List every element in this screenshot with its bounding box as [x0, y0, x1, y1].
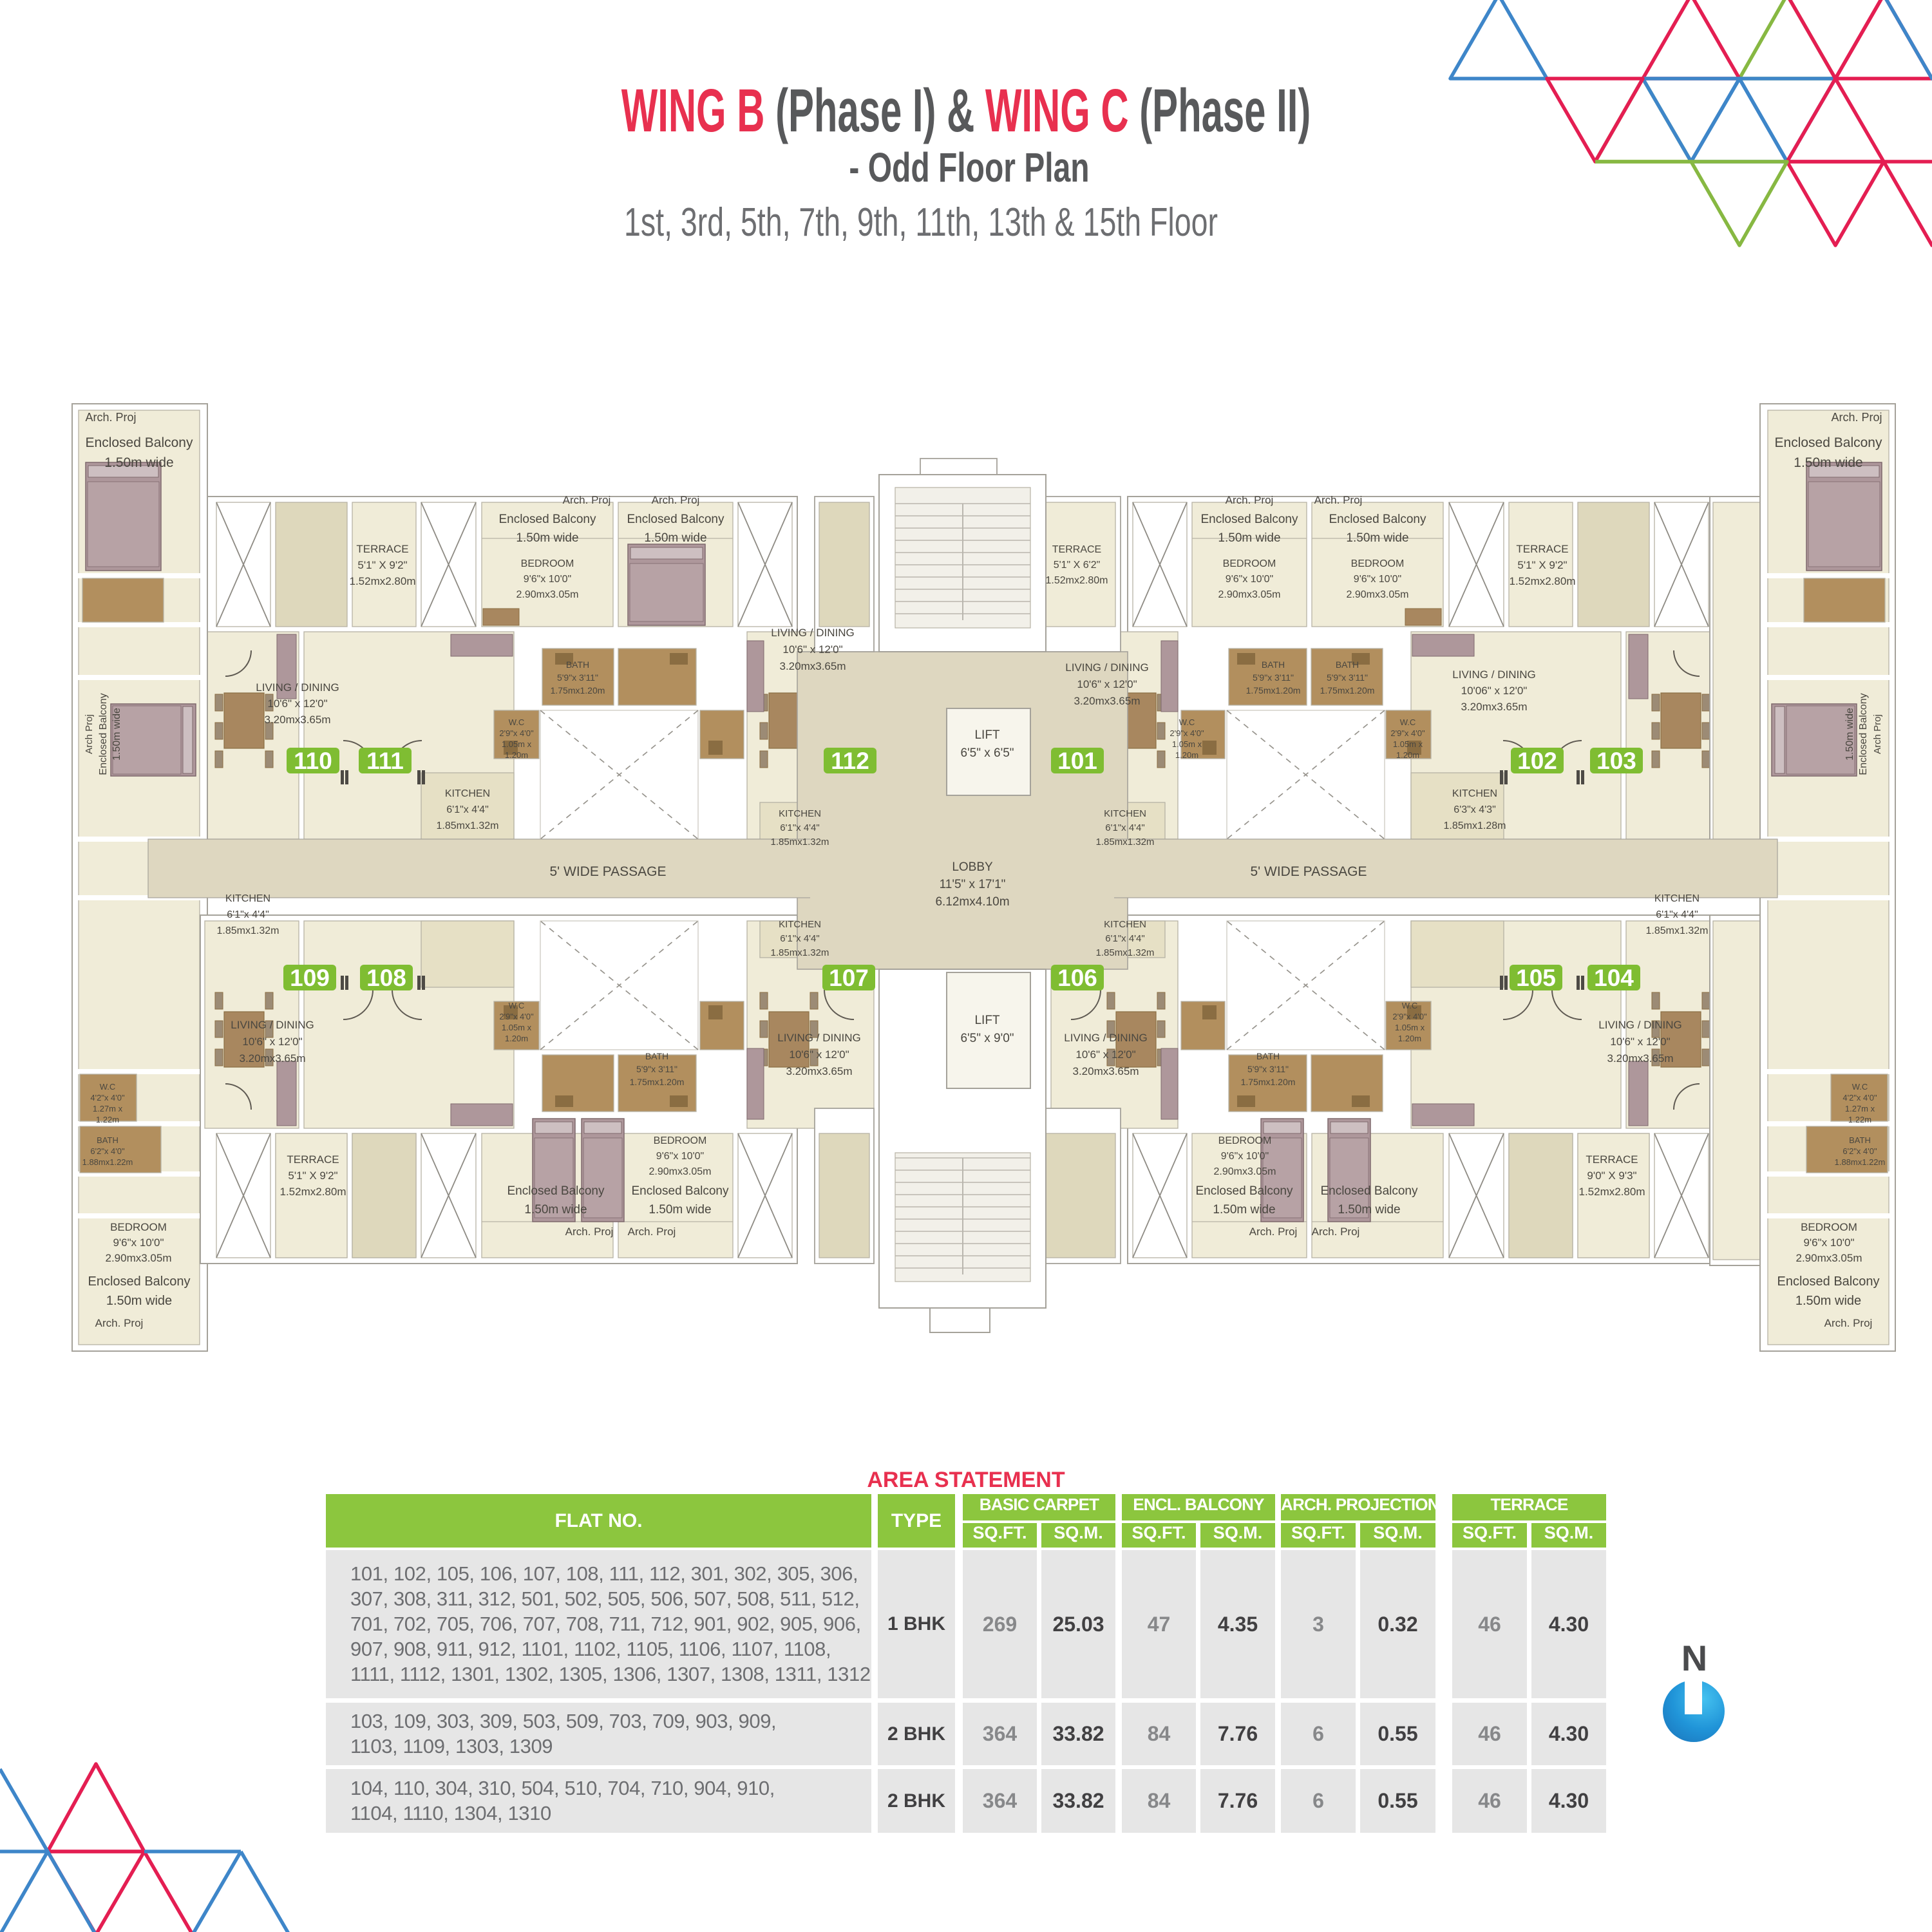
svg-text:10'6" x 12'0": 10'6" x 12'0"	[782, 643, 842, 656]
svg-text:2'9"x 4'0": 2'9"x 4'0"	[1170, 728, 1204, 738]
svg-text:Enclosed Balcony: Enclosed Balcony	[1329, 513, 1426, 526]
svg-text:9'6"x 10'0": 9'6"x 10'0"	[113, 1236, 164, 1249]
svg-text:108: 108	[366, 965, 406, 991]
svg-text:5'9"x 3'11": 5'9"x 3'11"	[557, 672, 598, 683]
svg-text:3.20mx3.65m: 3.20mx3.65m	[265, 714, 331, 726]
svg-text:Arch. Proj: Arch. Proj	[1831, 411, 1882, 424]
svg-text:5'9"x 3'11": 5'9"x 3'11"	[636, 1064, 677, 1074]
svg-text:1.75mx1.20m: 1.75mx1.20m	[630, 1077, 685, 1087]
svg-text:2.90mx3.05m: 2.90mx3.05m	[1347, 589, 1409, 600]
svg-text:1.85mx1.28m: 1.85mx1.28m	[1444, 820, 1506, 831]
svg-text:1.75mx1.20m: 1.75mx1.20m	[1320, 685, 1375, 696]
svg-text:2.90mx3.05m: 2.90mx3.05m	[1796, 1252, 1862, 1264]
svg-text:2'9"x 4'0": 2'9"x 4'0"	[1392, 1012, 1427, 1021]
svg-text:10'06" x 12'0": 10'06" x 12'0"	[1461, 685, 1528, 697]
svg-text:3.20mx3.65m: 3.20mx3.65m	[1073, 1065, 1139, 1077]
svg-text:3.20mx3.65m: 3.20mx3.65m	[780, 660, 846, 672]
svg-text:Arch Proj: Arch Proj	[84, 714, 95, 754]
svg-text:6'3"x 4'3": 6'3"x 4'3"	[1454, 804, 1496, 815]
svg-text:9'6"x 10'0": 9'6"x 10'0"	[1221, 1151, 1269, 1162]
svg-text:Arch. Proj: Arch. Proj	[1314, 494, 1363, 506]
svg-text:TERRACE: TERRACE	[1586, 1153, 1638, 1166]
svg-text:1.50m wide: 1.50m wide	[1794, 455, 1862, 470]
svg-text:10'6" x 12'0": 10'6" x 12'0"	[1075, 1048, 1135, 1061]
svg-text:2.90mx3.05m: 2.90mx3.05m	[1218, 589, 1281, 600]
svg-text:1.52mx2.80m: 1.52mx2.80m	[1579, 1186, 1645, 1198]
svg-text:Arch. Proj: Arch. Proj	[565, 1226, 614, 1238]
svg-text:104: 104	[1594, 965, 1634, 991]
svg-text:6'1"x 4'4": 6'1"x 4'4"	[1656, 909, 1698, 920]
svg-text:Arch. Proj: Arch. Proj	[1312, 1226, 1360, 1238]
svg-text:107: 107	[829, 965, 869, 991]
svg-text:1.85mx1.32m: 1.85mx1.32m	[1096, 837, 1155, 848]
svg-text:LOBBY: LOBBY	[952, 860, 993, 874]
svg-text:1.50m wide: 1.50m wide	[516, 531, 578, 545]
svg-text:106: 106	[1057, 965, 1097, 991]
svg-text:5' WIDE PASSAGE: 5' WIDE PASSAGE	[1250, 864, 1367, 879]
svg-text:1.20m: 1.20m	[505, 1034, 528, 1043]
svg-text:1.22m: 1.22m	[96, 1115, 119, 1124]
svg-text:KITCHEN: KITCHEN	[1104, 919, 1146, 930]
svg-text:110: 110	[294, 748, 332, 774]
svg-text:6'5" x 6'5": 6'5" x 6'5"	[960, 746, 1014, 760]
svg-text:Enclosed Balcony: Enclosed Balcony	[1777, 1274, 1880, 1289]
svg-text:KITCHEN: KITCHEN	[225, 893, 270, 904]
svg-text:1.50m wide: 1.50m wide	[1213, 1203, 1275, 1217]
svg-text:LIVING / DINING: LIVING / DINING	[256, 681, 339, 694]
svg-text:103: 103	[1596, 748, 1636, 774]
svg-text:LIVING / DINING: LIVING / DINING	[231, 1019, 314, 1031]
svg-text:6'1"x 4'4": 6'1"x 4'4"	[446, 804, 489, 815]
svg-text:109: 109	[290, 965, 330, 991]
svg-text:2.90mx3.05m: 2.90mx3.05m	[1214, 1166, 1276, 1177]
svg-text:11'5" x 17'1": 11'5" x 17'1"	[940, 878, 1006, 891]
svg-text:3.20mx3.65m: 3.20mx3.65m	[1461, 701, 1528, 713]
svg-text:3.20mx3.65m: 3.20mx3.65m	[1607, 1052, 1674, 1065]
svg-text:1.50m wide: 1.50m wide	[1338, 1203, 1400, 1217]
svg-text:1.05m x: 1.05m x	[502, 739, 532, 749]
svg-text:W.C: W.C	[1852, 1082, 1868, 1092]
svg-text:KITCHEN: KITCHEN	[1452, 788, 1497, 799]
svg-text:10'6" x 12'0": 10'6" x 12'0"	[242, 1036, 302, 1048]
svg-text:1.27m x: 1.27m x	[93, 1104, 123, 1113]
svg-text:5'1" X 9'2": 5'1" X 9'2"	[288, 1170, 337, 1182]
svg-text:9'6"x 10'0": 9'6"x 10'0"	[656, 1151, 704, 1162]
svg-text:1.85mx1.32m: 1.85mx1.32m	[771, 947, 829, 958]
svg-text:10'6" x 12'0": 10'6" x 12'0"	[1610, 1036, 1670, 1048]
svg-text:1.88mx1.22m: 1.88mx1.22m	[1835, 1157, 1886, 1167]
svg-text:LIFT: LIFT	[974, 728, 999, 742]
svg-text:1.50m wide: 1.50m wide	[644, 531, 706, 545]
svg-text:10'6" x 12'0": 10'6" x 12'0"	[789, 1048, 849, 1061]
svg-text:9'6"x 10'0": 9'6"x 10'0"	[1803, 1236, 1854, 1249]
svg-text:3.20mx3.65m: 3.20mx3.65m	[240, 1052, 306, 1065]
svg-text:LIVING / DINING: LIVING / DINING	[1598, 1019, 1681, 1031]
svg-text:1.20m: 1.20m	[1175, 750, 1198, 760]
svg-text:111: 111	[366, 748, 404, 774]
svg-text:W.C: W.C	[509, 717, 525, 727]
svg-text:6'1"x 4'4": 6'1"x 4'4"	[1105, 933, 1144, 944]
svg-text:KITCHEN: KITCHEN	[1654, 893, 1700, 904]
svg-text:LIVING / DINING: LIVING / DINING	[1452, 668, 1535, 681]
svg-text:1.27m x: 1.27m x	[1845, 1104, 1875, 1113]
svg-text:5'9"x 3'11": 5'9"x 3'11"	[1327, 672, 1368, 683]
svg-text:BATH: BATH	[97, 1135, 118, 1145]
svg-text:W.C: W.C	[100, 1082, 116, 1092]
svg-text:5' WIDE PASSAGE: 5' WIDE PASSAGE	[549, 864, 666, 879]
svg-text:BEDROOM: BEDROOM	[654, 1135, 707, 1146]
svg-text:4'2"x 4'0": 4'2"x 4'0"	[90, 1093, 125, 1103]
svg-text:9'6"x 10'0": 9'6"x 10'0"	[1354, 574, 1401, 585]
svg-text:Arch. Proj: Arch. Proj	[1249, 1226, 1298, 1238]
svg-text:LIVING / DINING: LIVING / DINING	[1065, 661, 1148, 674]
svg-text:1.50m wide: 1.50m wide	[1218, 531, 1280, 545]
svg-text:1.05m x: 1.05m x	[1172, 739, 1202, 749]
svg-text:1.05m x: 1.05m x	[1395, 1023, 1425, 1032]
svg-text:1.05m x: 1.05m x	[502, 1023, 532, 1032]
svg-text:6'1"x 4'4": 6'1"x 4'4"	[1105, 822, 1144, 833]
svg-text:1.52mx2.80m: 1.52mx2.80m	[1510, 575, 1576, 587]
svg-text:Enclosed Balcony: Enclosed Balcony	[86, 435, 193, 450]
svg-text:105: 105	[1516, 965, 1556, 991]
svg-text:Enclosed Balcony: Enclosed Balcony	[631, 1184, 729, 1198]
svg-text:6.12mx4.10m: 6.12mx4.10m	[935, 895, 1009, 909]
svg-text:2.90mx3.05m: 2.90mx3.05m	[106, 1252, 172, 1264]
svg-text:2'9"x 4'0": 2'9"x 4'0"	[1390, 728, 1425, 738]
svg-text:BEDROOM: BEDROOM	[1351, 558, 1405, 569]
svg-text:1.75mx1.20m: 1.75mx1.20m	[551, 685, 605, 696]
svg-text:BATH: BATH	[645, 1051, 668, 1061]
svg-text:TERRACE: TERRACE	[1052, 544, 1101, 555]
svg-text:1.85mx1.32m: 1.85mx1.32m	[1096, 947, 1155, 958]
svg-text:9'6"x 10'0": 9'6"x 10'0"	[524, 574, 571, 585]
svg-text:KITCHEN: KITCHEN	[445, 788, 490, 799]
svg-text:1.88mx1.22m: 1.88mx1.22m	[82, 1157, 133, 1167]
svg-text:LIFT: LIFT	[974, 1014, 999, 1027]
svg-text:1.50m wide: 1.50m wide	[1346, 531, 1408, 545]
svg-text:W.C: W.C	[1402, 1001, 1418, 1010]
svg-text:5'1" X 6'2": 5'1" X 6'2"	[1054, 560, 1101, 571]
svg-text:Enclosed Balcony: Enclosed Balcony	[98, 693, 109, 775]
svg-text:Enclosed Balcony: Enclosed Balcony	[1858, 693, 1869, 775]
svg-text:Enclosed Balcony: Enclosed Balcony	[1775, 435, 1882, 450]
svg-text:BEDROOM: BEDROOM	[1223, 558, 1276, 569]
svg-text:W.C: W.C	[509, 1001, 525, 1010]
svg-text:112: 112	[831, 748, 869, 774]
svg-text:5'1" X 9'2": 5'1" X 9'2"	[1517, 559, 1567, 571]
svg-text:TERRACE: TERRACE	[1516, 543, 1568, 555]
svg-text:10'6" x 12'0": 10'6" x 12'0"	[267, 697, 327, 710]
svg-text:1.85mx1.32m: 1.85mx1.32m	[217, 925, 279, 936]
svg-text:LIVING / DINING: LIVING / DINING	[771, 627, 854, 639]
svg-text:KITCHEN: KITCHEN	[779, 919, 821, 930]
svg-text:- Odd Floor Plan: - Odd Floor Plan	[849, 144, 1089, 190]
svg-text:1.52mx2.80m: 1.52mx2.80m	[1046, 575, 1108, 586]
svg-text:Arch. Proj: Arch. Proj	[652, 494, 700, 506]
svg-text:1.85mx1.32m: 1.85mx1.32m	[771, 837, 829, 848]
svg-text:Enclosed Balcony: Enclosed Balcony	[1195, 1184, 1293, 1198]
svg-text:1.75mx1.20m: 1.75mx1.20m	[1246, 685, 1301, 696]
svg-text:BEDROOM: BEDROOM	[521, 558, 574, 569]
svg-text:1.05m x: 1.05m x	[1393, 739, 1423, 749]
svg-text:5'1" X 9'2": 5'1" X 9'2"	[357, 559, 407, 571]
svg-text:2.90mx3.05m: 2.90mx3.05m	[649, 1166, 712, 1177]
svg-text:1.50m wide: 1.50m wide	[1844, 708, 1855, 761]
svg-text:3.20mx3.65m: 3.20mx3.65m	[786, 1065, 853, 1077]
svg-text:2'9"x 4'0": 2'9"x 4'0"	[499, 1012, 534, 1021]
svg-text:W.C: W.C	[1400, 717, 1416, 727]
svg-text:10'6" x 12'0": 10'6" x 12'0"	[1077, 678, 1137, 690]
svg-text:1.75mx1.20m: 1.75mx1.20m	[1241, 1077, 1296, 1087]
svg-text:BEDROOM: BEDROOM	[1218, 1135, 1272, 1146]
svg-text:1st, 3rd, 5th, 7th, 9th, 11th,: 1st, 3rd, 5th, 7th, 9th, 11th, 13th & 15…	[624, 199, 1218, 244]
svg-text:Arch. Proj: Arch. Proj	[1226, 494, 1274, 506]
svg-text:LIVING / DINING: LIVING / DINING	[777, 1032, 860, 1044]
svg-text:Enclosed Balcony: Enclosed Balcony	[498, 513, 596, 526]
svg-text:BEDROOM: BEDROOM	[1801, 1221, 1857, 1233]
svg-text:Arch. Proj: Arch. Proj	[563, 494, 611, 506]
svg-text:W.C: W.C	[1179, 717, 1195, 727]
svg-text:Enclosed Balcony: Enclosed Balcony	[627, 513, 724, 526]
svg-text:1.50m wide: 1.50m wide	[104, 455, 173, 470]
svg-text:LIVING / DINING: LIVING / DINING	[1064, 1032, 1147, 1044]
svg-text:2.90mx3.05m: 2.90mx3.05m	[516, 589, 579, 600]
svg-text:Arch. Proj: Arch. Proj	[85, 411, 136, 424]
svg-text:1.85mx1.32m: 1.85mx1.32m	[437, 820, 499, 831]
svg-text:6'1"x 4'4": 6'1"x 4'4"	[780, 822, 819, 833]
svg-text:KITCHEN: KITCHEN	[1104, 808, 1146, 819]
svg-text:BEDROOM: BEDROOM	[110, 1221, 167, 1233]
svg-text:WING B (Phase I) & WING C (Pha: WING B (Phase I) & WING C (Phase II)	[621, 76, 1311, 144]
svg-text:BATH: BATH	[1849, 1135, 1871, 1145]
svg-text:6'5" x 9'0": 6'5" x 9'0"	[960, 1032, 1014, 1045]
svg-text:Enclosed Balcony: Enclosed Balcony	[88, 1274, 191, 1289]
svg-text:1.20m: 1.20m	[1396, 750, 1419, 760]
svg-text:1.85mx1.32m: 1.85mx1.32m	[1646, 925, 1709, 936]
svg-text:1.50m wide: 1.50m wide	[106, 1294, 172, 1308]
svg-text:1.50m wide: 1.50m wide	[1795, 1294, 1861, 1308]
svg-text:1.50m wide: 1.50m wide	[524, 1203, 587, 1217]
svg-text:6'1"x 4'4": 6'1"x 4'4"	[780, 933, 819, 944]
svg-text:5'9"x 3'11": 5'9"x 3'11"	[1247, 1064, 1289, 1074]
svg-text:4'2"x 4'0": 4'2"x 4'0"	[1842, 1093, 1877, 1103]
svg-text:TERRACE: TERRACE	[287, 1153, 339, 1166]
svg-text:BATH: BATH	[1256, 1051, 1280, 1061]
svg-text:3.20mx3.65m: 3.20mx3.65m	[1074, 695, 1141, 707]
svg-text:2'9"x 4'0": 2'9"x 4'0"	[499, 728, 534, 738]
svg-text:101: 101	[1057, 748, 1097, 774]
svg-text:BATH: BATH	[1262, 659, 1285, 670]
svg-text:BATH: BATH	[1336, 659, 1359, 670]
svg-text:5'9"x 3'11": 5'9"x 3'11"	[1253, 672, 1294, 683]
svg-text:Arch. Proj: Arch. Proj	[628, 1226, 676, 1238]
svg-text:6'2"x 4'0": 6'2"x 4'0"	[1842, 1146, 1877, 1156]
svg-text:KITCHEN: KITCHEN	[779, 808, 821, 819]
svg-text:1.50m wide: 1.50m wide	[111, 708, 122, 761]
svg-text:102: 102	[1517, 748, 1557, 774]
svg-text:Arch Proj: Arch Proj	[1872, 714, 1883, 754]
svg-text:6'2"x 4'0": 6'2"x 4'0"	[90, 1146, 125, 1156]
svg-text:1.20m: 1.20m	[505, 750, 528, 760]
svg-text:Enclosed Balcony: Enclosed Balcony	[507, 1184, 605, 1198]
svg-text:9'0" X 9'3": 9'0" X 9'3"	[1587, 1170, 1636, 1182]
svg-text:1.52mx2.80m: 1.52mx2.80m	[280, 1186, 346, 1198]
svg-text:9'6"x 10'0": 9'6"x 10'0"	[1226, 574, 1273, 585]
svg-text:Arch. Proj: Arch. Proj	[1824, 1317, 1873, 1329]
svg-text:1.52mx2.80m: 1.52mx2.80m	[350, 575, 416, 587]
svg-text:1.50m wide: 1.50m wide	[649, 1203, 711, 1217]
svg-text:Arch. Proj: Arch. Proj	[95, 1317, 144, 1329]
svg-text:1.20m: 1.20m	[1398, 1034, 1421, 1043]
svg-text:6'1"x 4'4": 6'1"x 4'4"	[227, 909, 269, 920]
svg-text:BATH: BATH	[566, 659, 589, 670]
svg-text:Enclosed Balcony: Enclosed Balcony	[1320, 1184, 1418, 1198]
svg-text:TERRACE: TERRACE	[356, 543, 408, 555]
svg-text:Enclosed Balcony: Enclosed Balcony	[1200, 513, 1298, 526]
svg-text:1.22m: 1.22m	[1848, 1115, 1871, 1124]
